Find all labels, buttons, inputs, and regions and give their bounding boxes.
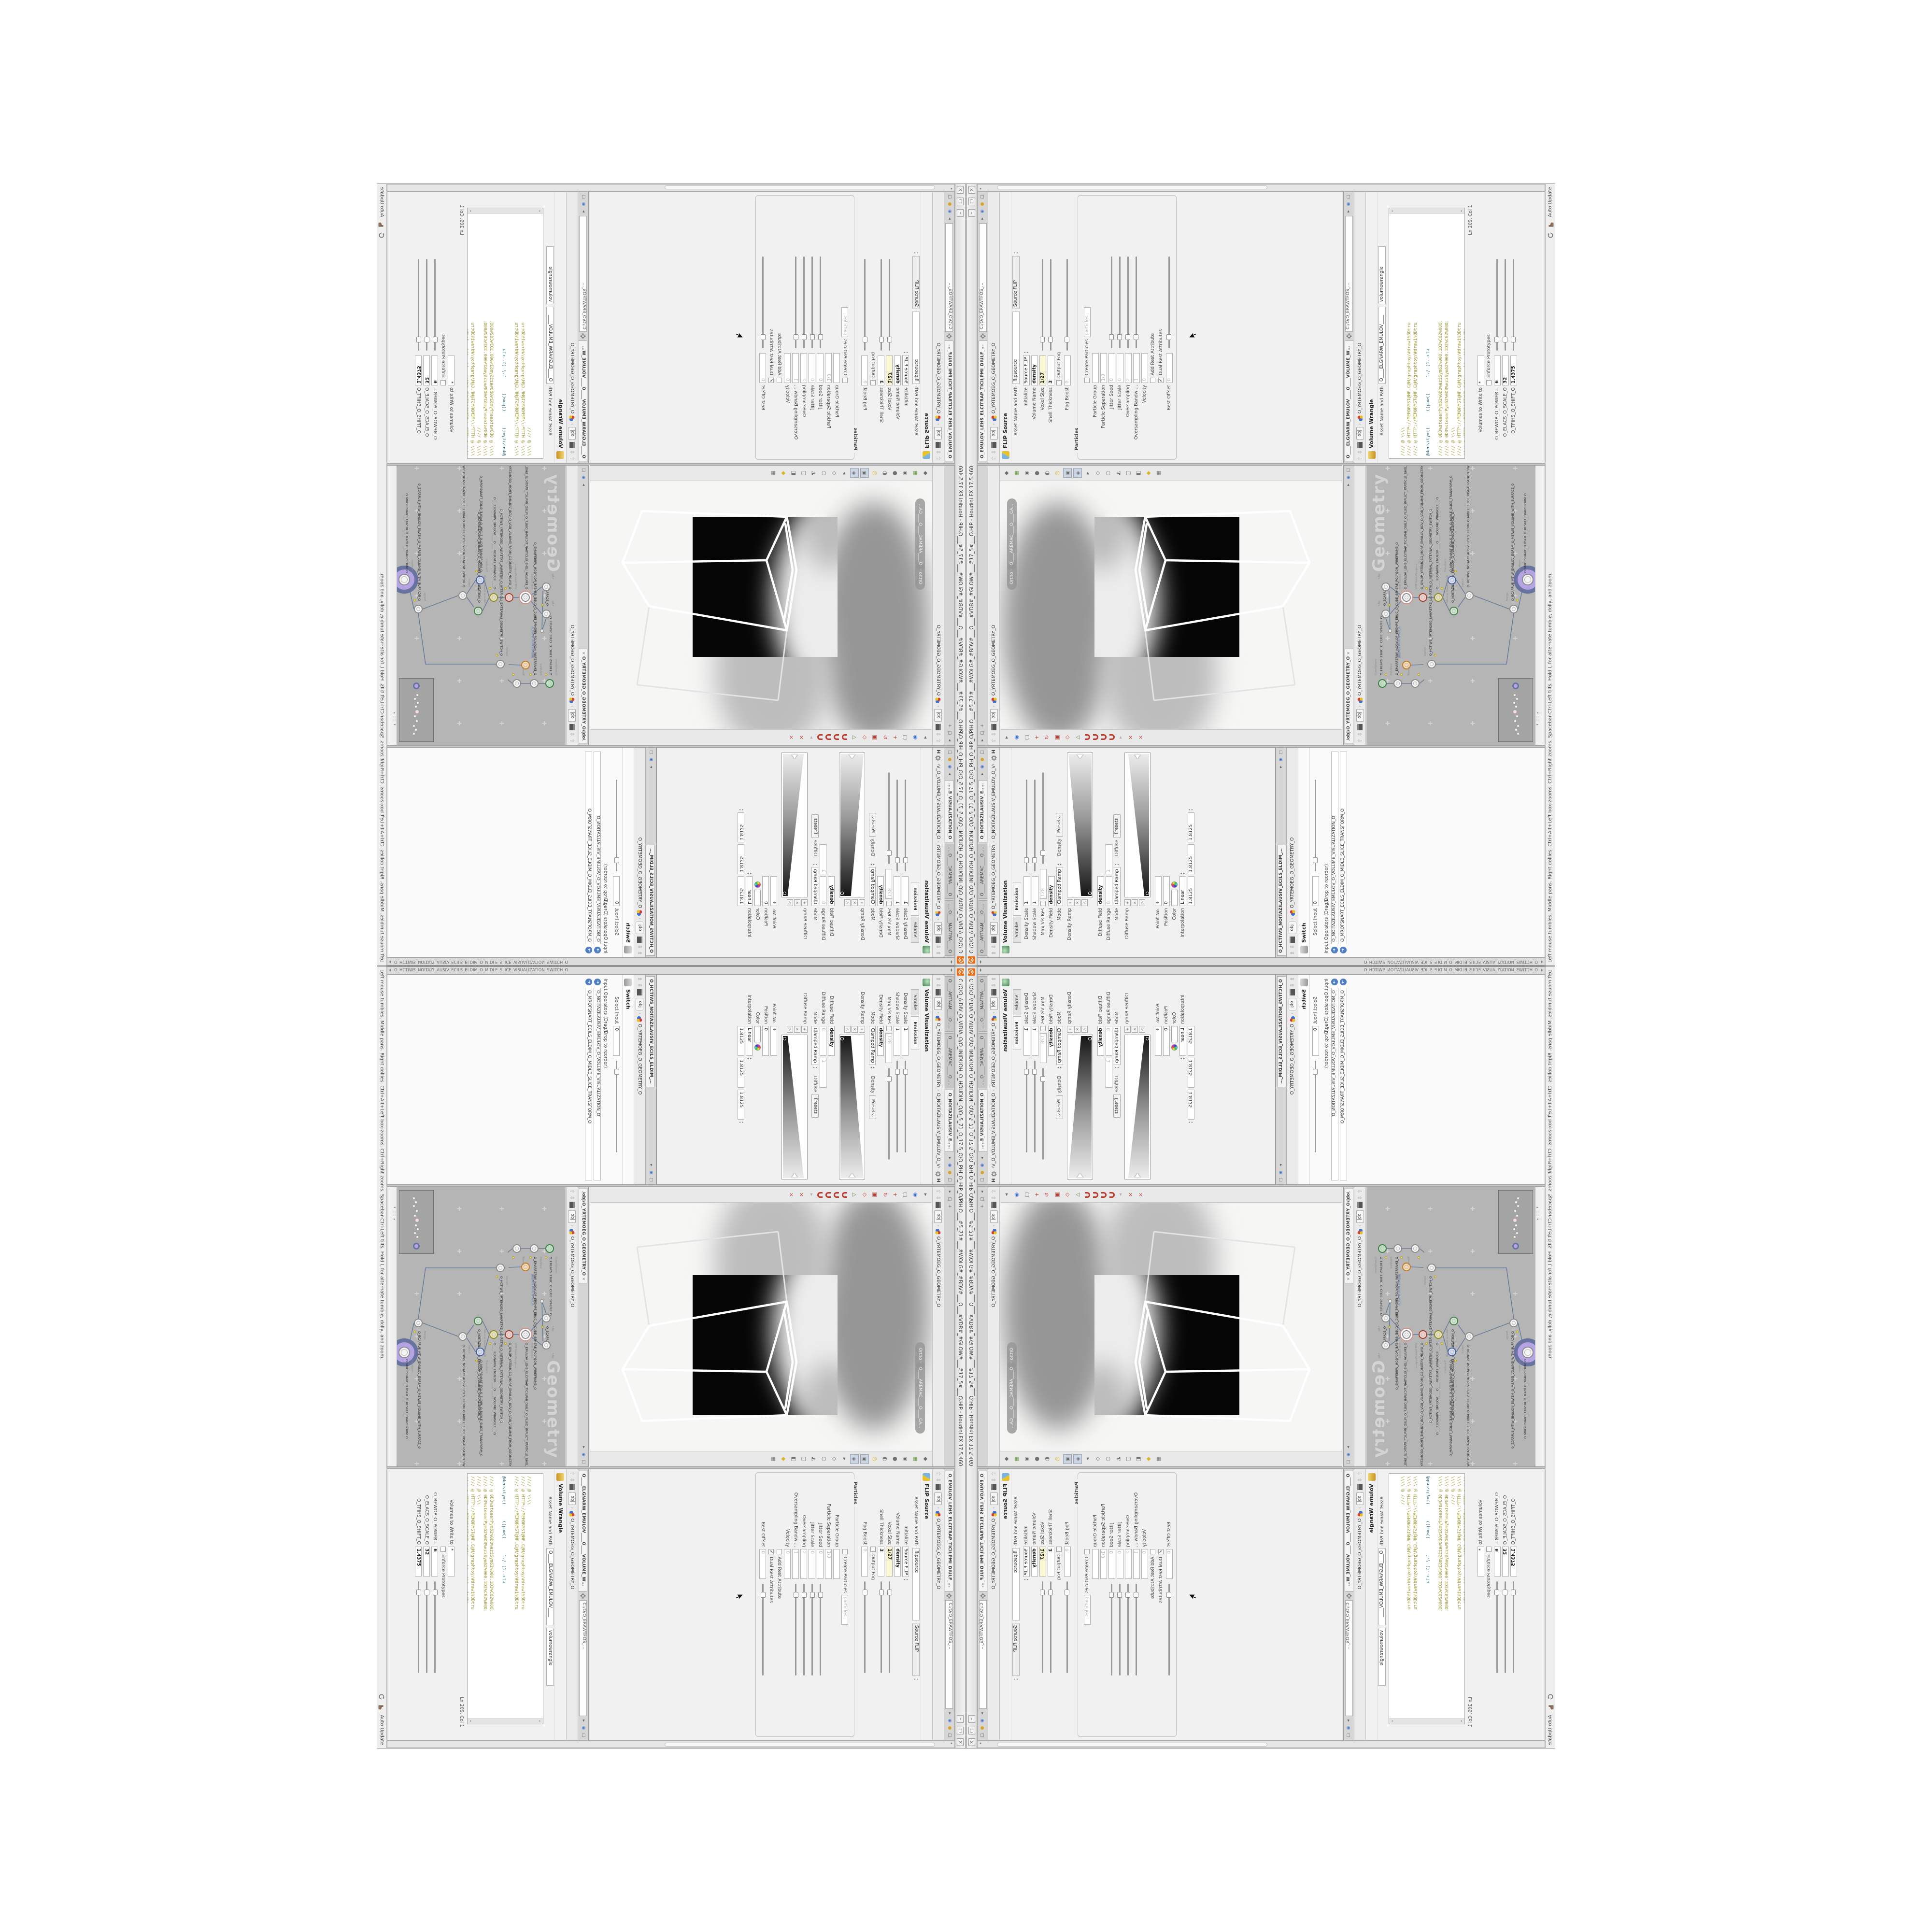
- link-icon[interactable]: ◉: [980, 208, 986, 214]
- hda-path-field[interactable]: C:/O/O_ERAWTFOS_...: [1345, 216, 1353, 332]
- breadcrumb-node[interactable]: O_YRTEMOEG_O_GEOMETRY_O: [637, 1024, 642, 1095]
- ramp-cursor-handle[interactable]: [792, 1173, 797, 1178]
- toolbar-icon[interactable]: ▸: [1083, 469, 1092, 478]
- node-flag[interactable]: [1418, 673, 1420, 676]
- network-node[interactable]: Switch O_HCTIWS_YRTEMOEG_LANRETXE_LANRET…: [1427, 1264, 1436, 1272]
- param-value-field[interactable]: density: [895, 355, 901, 385]
- param-value-field[interactable]: 1: [793, 1549, 799, 1579]
- link-icon[interactable]: ◉: [580, 1725, 586, 1731]
- pane-tab-volume-wrangle[interactable]: O____ELGNARW_EMULOV____O____VOLUME_WRANG…: [579, 341, 588, 461]
- pin-icon[interactable]: ●: [946, 201, 952, 207]
- density-ramp-editor[interactable]: [1067, 753, 1093, 897]
- param-checkbox[interactable]: ✓: [1158, 1549, 1164, 1554]
- value-spinner[interactable]: ▴▾: [913, 249, 919, 254]
- param-value-field[interactable]: 32: [1502, 355, 1509, 385]
- toolbar-icon[interactable]: ▸: [1002, 733, 1011, 742]
- breadcrumb-node[interactable]: O_YRTEMOEG_O_GEOMETRY_O: [569, 343, 575, 414]
- ramp-delete-point-button[interactable]: ×: [794, 1026, 800, 1033]
- param-value-field[interactable]: 0: [613, 876, 620, 906]
- param-checkbox[interactable]: [1084, 378, 1090, 383]
- param-value-field[interactable]: 2: [801, 1549, 808, 1579]
- toolbar-icon[interactable]: [1109, 1192, 1115, 1198]
- toolbar-icon[interactable]: ◐: [881, 1454, 889, 1464]
- input-operator-row[interactable]: ➜ O_NOITAZILAUSIV_EMULOV_O_VOLUME_VISUAL…: [593, 975, 602, 1184]
- restore-button[interactable]: ▢: [957, 1727, 964, 1734]
- nav-up-icon[interactable]: ⇧: [1357, 1189, 1363, 1193]
- node-flag[interactable]: [512, 673, 514, 676]
- network-node[interactable]: PolyWire O_EMARFERIW_NOGYLOP_EREHPS_EBUC…: [530, 679, 539, 688]
- network-node[interactable]: PolyWire O_EMARFERIW_NOGYLOP_EREHPS_EBUC…: [1393, 679, 1402, 688]
- breadcrumb-root[interactable]: obj: [990, 1210, 998, 1223]
- toolbar-icon[interactable]: ◈: [850, 469, 859, 478]
- param-slider[interactable]: [616, 1061, 617, 1152]
- param-value-field[interactable]: 1.8125: [1188, 844, 1194, 874]
- param-value-field[interactable]: 3: [1048, 355, 1054, 385]
- breadcrumb-root[interactable]: obj: [568, 1492, 576, 1505]
- ramp-point-handle[interactable]: [1146, 1037, 1149, 1040]
- param-value-field[interactable]: 1/9: [825, 1549, 832, 1579]
- network-node[interactable]: Volume Visualization O_NOITAZILAUSIV_EMU…: [474, 607, 483, 615]
- param-slider[interactable]: [426, 1581, 427, 1673]
- param-slider[interactable]: [1050, 259, 1051, 351]
- value-spinner[interactable]: ▴▾: [1057, 861, 1063, 865]
- breadcrumb-node[interactable]: O_YRTEMOEG_O_GEOMETRY_O: [936, 1519, 941, 1590]
- toolbar-icon[interactable]: ▦: [911, 469, 920, 478]
- value-spinner[interactable]: ▴▾: [747, 870, 753, 874]
- asset-menu[interactable]: Source FLIP: [1012, 256, 1020, 309]
- node-flag[interactable]: [529, 673, 532, 676]
- close-button[interactable]: ×: [957, 1738, 964, 1746]
- pane-tab-volume-wrangle[interactable]: O____ELGNARW_EMULOV____O____VOLUME_WRANG…: [1345, 341, 1353, 461]
- param-slider[interactable]: [896, 1061, 898, 1152]
- stowed-pane-bar-left[interactable]: ◂▸ O_HCTIWS_NOITAZILAUSIV_ECILS_ELDIM_O_…: [977, 958, 1545, 966]
- param-slider[interactable]: [1111, 256, 1112, 348]
- toolbar-icon[interactable]: ◉: [901, 469, 909, 478]
- gear-icon[interactable]: [947, 1593, 952, 1599]
- toolbar-icon[interactable]: ▣: [1063, 469, 1072, 478]
- param-checkbox[interactable]: [1486, 1547, 1492, 1552]
- pane-split-icon[interactable]: +: [980, 1203, 986, 1209]
- param-value-field[interactable]: 32: [424, 355, 430, 385]
- asset-name-field-2[interactable]: volumewrangle: [1378, 1628, 1386, 1686]
- value-spinner[interactable]: ▴▾: [1114, 861, 1120, 865]
- toolbar-icon[interactable]: ▦: [1012, 469, 1021, 478]
- nav-up-icon[interactable]: ⇧: [569, 1189, 575, 1193]
- toolbar-icon[interactable]: ×: [787, 733, 796, 742]
- network-node[interactable]: CubeSphere O_EREHPS_EBUC_O_CUBE_SPHERE_O: [545, 1244, 554, 1253]
- node-flag[interactable]: [1516, 599, 1519, 601]
- network-node[interactable]: Bound: [1411, 1244, 1420, 1253]
- param-slider[interactable]: [1168, 1584, 1170, 1676]
- ramp-cursor-handle[interactable]: [1077, 754, 1083, 759]
- pane-split-icon[interactable]: +: [980, 723, 986, 729]
- stow-icon[interactable]: ▸: [946, 771, 952, 777]
- value-spinner[interactable]: ▴▾: [1057, 1067, 1063, 1071]
- param-value-field[interactable]: 1: [1155, 876, 1162, 906]
- diffuse-ramp-editor[interactable]: [781, 753, 808, 897]
- asset-name-field[interactable]: flipsource: [912, 312, 920, 384]
- param-value-field[interactable]: 1/9: [1100, 1549, 1107, 1579]
- param-slider[interactable]: [864, 1581, 866, 1673]
- color-swatch[interactable]: [1171, 1026, 1178, 1042]
- pane-tab-volume-wrangle[interactable]: O____ELGNARW_EMULOV____O____VOLUME_WRANG…: [1345, 1471, 1353, 1591]
- pane-menu-icon[interactable]: ▢: [580, 1732, 586, 1738]
- param-value-field[interactable]: *: [448, 1547, 455, 1577]
- hda-path-field[interactable]: C:/O/O_ERAWTFOS_...: [580, 1600, 587, 1716]
- ramp-cursor-handle[interactable]: [849, 754, 855, 759]
- update-mode-selector[interactable]: Auto Update: [1548, 1715, 1553, 1745]
- param-slider[interactable]: [1496, 259, 1498, 351]
- gear-icon[interactable]: [581, 333, 586, 339]
- node-flag[interactable]: [1425, 1342, 1428, 1345]
- network-node[interactable]: Merge O_ECAFRUS_HTIW_EMULOV_EGREM_O_MERG…: [1509, 605, 1518, 613]
- toolbar-icon[interactable]: ◉: [1023, 469, 1031, 478]
- asset-name-field[interactable]: O____ELGNARW_EMULOV____: [546, 1548, 554, 1625]
- stow-icon[interactable]: ▸: [980, 1710, 986, 1717]
- input-operator-row[interactable]: ➜ O_NOITAZILAUSIV_EMULOV_O_VOLUME_VISUAL…: [1330, 748, 1339, 957]
- toolbar-icon[interactable]: ▦: [1154, 469, 1163, 478]
- reorder-icon[interactable]: ➜: [594, 979, 601, 985]
- minimize-button[interactable]: –: [968, 209, 975, 217]
- hda-path-field[interactable]: C:/O/O_ERAWTFOS_...: [979, 223, 987, 332]
- breadcrumb-node[interactable]: O_YRTEMOEG_O_GEOMETRY_O: [569, 1519, 575, 1590]
- stow-icon[interactable]: ▸: [648, 764, 654, 770]
- link-icon[interactable]: ◉: [946, 208, 952, 214]
- ramp-add-point-button[interactable]: +: [1124, 1026, 1131, 1033]
- param-value-field[interactable]: Linear: [1179, 876, 1186, 906]
- param-checkbox[interactable]: [870, 1547, 876, 1552]
- value-spinner[interactable]: ▴▾: [1188, 806, 1194, 810]
- asset-name-field[interactable]: flipsource: [1012, 312, 1020, 384]
- code-scrollbar[interactable]: ▴▾: [1389, 208, 1464, 213]
- stowed-pane-bar-right[interactable]: ◂: [387, 1740, 955, 1748]
- ramp-delete-point-button[interactable]: ×: [1074, 1026, 1080, 1033]
- breadcrumb-node[interactable]: O_YRTEMOEG_O_GEOMETRY_O: [991, 1236, 996, 1307]
- network-node[interactable]: Clip O_ECAFRUS_...: [1381, 610, 1390, 618]
- stowed-pane-bar-right[interactable]: ◂: [387, 184, 955, 192]
- param-value-field[interactable]: Source FLIP: [1023, 355, 1030, 385]
- param-value-field[interactable]: *: [448, 355, 455, 385]
- pane-tab-flip-source[interactable]: O_EMULOV_LEHS_ELCITRAP_TICILPMI_DIULF_O_…: [945, 341, 954, 461]
- network-node[interactable]: Volume Wrangle O____ELGNARW_EMULOV____O_…: [489, 1330, 498, 1339]
- value-spinner[interactable]: ▴▾: [747, 1058, 753, 1062]
- toolbar-icon[interactable]: ◎: [870, 1454, 879, 1464]
- param-slider[interactable]: [888, 772, 890, 864]
- ramp-cursor-handle[interactable]: [849, 1173, 855, 1178]
- color-swatch[interactable]: [754, 890, 761, 906]
- ramp-cursor-handle[interactable]: [1135, 1173, 1140, 1178]
- pane-tab-camera[interactable]: O____AREMAC____O... ×: [945, 844, 954, 899]
- network-node[interactable]: Clip O_ECAFRUS_...: [542, 610, 551, 618]
- network-overview-map[interactable]: [399, 1190, 434, 1254]
- param-value-field[interactable]: 0: [784, 1549, 791, 1579]
- param-value-field[interactable]: 0: [1312, 876, 1319, 906]
- breadcrumb-root[interactable]: obj: [1356, 1210, 1364, 1223]
- toolbar-icon[interactable]: ▣: [1053, 1190, 1062, 1200]
- node-flag[interactable]: [1400, 673, 1403, 676]
- pane-tab-mantra[interactable]: O____ARTNAM____O... ×: [945, 900, 954, 956]
- toolbar-icon[interactable]: ◆: [921, 1454, 930, 1464]
- presets-button[interactable]: Presets: [811, 814, 819, 838]
- toolbar-icon[interactable]: ▸: [807, 733, 816, 742]
- tab-smoke[interactable]: Smoke: [1013, 989, 1021, 1015]
- link-icon[interactable]: ◉: [1278, 1169, 1284, 1176]
- breadcrumb-node[interactable]: O_YRTEMOEG_O_GEOMETRY_O: [991, 845, 996, 909]
- update-mode-selector[interactable]: Auto Update: [379, 1715, 384, 1745]
- network-node[interactable]: Transform O_MROFSNART_TLUSER_O_RESULT_TR…: [1522, 1347, 1534, 1358]
- ramp-cursor-handle[interactable]: [1077, 1173, 1083, 1178]
- breadcrumb-node[interactable]: O_YRTEMOEG_O_GEOMETRY_O: [1357, 1236, 1363, 1307]
- network-node[interactable]: Transform O_MROFSNART_TLUSER_O_RESULT_TR…: [398, 574, 410, 585]
- param-value-field[interactable]: 1/27: [1039, 1547, 1046, 1577]
- toolbar-icon[interactable]: ▸: [1116, 733, 1125, 742]
- network-node[interactable]: Volume Wrangle O____ELGNARW_EMULOV____O_…: [1434, 593, 1443, 602]
- pane-tab-network[interactable]: /obj/O_YRTEMOEG_O_GEOMETRY_O ×: [1345, 649, 1353, 743]
- value-spinner[interactable]: ▴▾: [913, 1678, 919, 1683]
- nav-down-icon[interactable]: ⇩: [935, 945, 941, 949]
- window-titlebar[interactable]: C:/O/O_AIDIV_O_VIDIA_O/O_INIDUOH_O_HOUDI…: [966, 184, 977, 966]
- toolbar-icon[interactable]: ▦: [911, 1454, 920, 1464]
- stow-icon[interactable]: ▸: [946, 737, 952, 743]
- toolbar-icon[interactable]: ×: [787, 1190, 796, 1200]
- ramp-add-point-button[interactable]: +: [801, 899, 808, 906]
- toolbar-icon[interactable]: ◎: [870, 469, 879, 478]
- toolbar-icon[interactable]: +: [891, 733, 899, 742]
- network-overview-map[interactable]: [1498, 1190, 1533, 1254]
- toolbar-icon[interactable]: ▣: [870, 733, 879, 742]
- network-node[interactable]: Transform O_MROFSNART_ECILS_ELDIM_O_MIDL…: [1448, 576, 1456, 584]
- toolbar-icon[interactable]: △: [850, 1190, 859, 1200]
- toolbar-icon[interactable]: +: [1033, 1190, 1041, 1200]
- node-flag[interactable]: [1385, 1256, 1387, 1259]
- ramp-add-point-button[interactable]: +: [1124, 899, 1131, 906]
- color-swatch[interactable]: [1171, 890, 1178, 906]
- nav-up-icon[interactable]: ⇧: [935, 951, 941, 955]
- reorder-icon[interactable]: ➜: [585, 947, 592, 953]
- breadcrumb-node[interactable]: O_YRTEMOEG_O_GEOMETRY_O: [936, 625, 941, 696]
- toolbar-icon[interactable]: [825, 735, 831, 740]
- stowed-pane-bar-right[interactable]: ◂: [977, 1740, 1545, 1748]
- gear-icon[interactable]: [947, 333, 952, 339]
- nav-up-icon[interactable]: ⇧: [637, 977, 643, 981]
- param-value-field[interactable]: 1.8125: [1188, 812, 1194, 842]
- gear-icon[interactable]: [980, 1593, 986, 1599]
- color-swatch[interactable]: [754, 1026, 761, 1042]
- param-value-field[interactable]: density: [878, 1026, 884, 1056]
- viewport-canvas[interactable]: Ortho ▾ O____AREMAC____O____CA...: [590, 481, 932, 729]
- toolbar-icon[interactable]: ◉: [911, 1190, 920, 1200]
- param-value-field[interactable]: Source FLIP: [903, 1547, 909, 1577]
- network-node[interactable]: CubeSphere O_EREHPS_EBUC_O_CUBE_SPHERE_O: [1378, 679, 1387, 688]
- nav-down-icon[interactable]: ⇩: [991, 732, 997, 737]
- param-slider[interactable]: [1111, 1584, 1112, 1676]
- param-value-field[interactable]: density: [1031, 355, 1038, 385]
- param-value-field[interactable]: Linear: [746, 876, 753, 906]
- toolbar-icon[interactable]: ◭: [810, 469, 818, 478]
- ramp-flip-button[interactable]: ▷: [787, 899, 793, 906]
- param-value-field[interactable]: particles: [842, 1595, 849, 1625]
- stow-icon[interactable]: ▸: [1346, 208, 1352, 214]
- toolbar-icon[interactable]: ◆: [921, 469, 930, 478]
- network-node[interactable]: Switch O_HCTIWS_NOITAZILAUSIV_ECILS_ELDI…: [458, 591, 467, 600]
- breadcrumb-node[interactable]: O_YRTEMOEG_O_GEOMETRY_O: [936, 845, 941, 909]
- param-value-field[interactable]: 1/9: [825, 353, 832, 383]
- toolbar-icon[interactable]: +: [1033, 733, 1041, 742]
- pane-tab-visualization[interactable]: O_NOITAZILAUSIV_E... ×: [945, 1090, 954, 1152]
- breadcrumb-node[interactable]: O_YRTEMOEG_O_GEOMETRY_O: [1357, 343, 1363, 414]
- nav-down-icon[interactable]: ⇩: [935, 983, 941, 987]
- ramp-delete-point-button[interactable]: ×: [1132, 899, 1138, 906]
- param-slider[interactable]: [811, 256, 813, 348]
- pane-tab-mantra[interactable]: O____ARTNAM____O... ×: [945, 976, 954, 1032]
- toolbar-icon[interactable]: ◭: [1114, 469, 1122, 478]
- restore-button[interactable]: ▢: [957, 198, 964, 205]
- param-value-field[interactable]: 1.8125: [738, 1058, 745, 1088]
- breadcrumb-root[interactable]: obj: [1356, 1492, 1364, 1505]
- param-slider[interactable]: [1127, 256, 1129, 348]
- param-value-field[interactable]: 0: [1163, 1026, 1170, 1056]
- value-spinner[interactable]: ▴▾: [812, 1067, 818, 1071]
- breadcrumb-root[interactable]: obj: [636, 922, 644, 934]
- code-scrollbar[interactable]: ▴▾: [468, 208, 543, 213]
- node-flag[interactable]: [1434, 1276, 1436, 1278]
- param-value-field[interactable]: Linear: [1179, 1026, 1186, 1056]
- vex-snippet-editor[interactable]: //// @ \\\\//// @ HTTP://MEMORYST@MP.C@M…: [467, 1473, 543, 1724]
- param-slider[interactable]: [1496, 1581, 1498, 1673]
- param-value-field[interactable]: 6: [432, 355, 439, 385]
- network-node[interactable]: Transform O_MROFSNART_ECILS_ELDIM_O_MIDL…: [476, 576, 484, 584]
- toolbar-icon[interactable]: ◇: [1063, 733, 1072, 742]
- param-slider[interactable]: [795, 1584, 796, 1676]
- stow-icon[interactable]: ▸: [580, 1444, 586, 1450]
- minimize-button[interactable]: –: [957, 1715, 964, 1723]
- toolbar-icon[interactable]: ◈: [1073, 1454, 1082, 1464]
- close-button[interactable]: ×: [968, 186, 975, 194]
- param-value-field[interactable]: density: [1097, 876, 1104, 906]
- param-value-field[interactable]: 1: [1106, 1058, 1112, 1088]
- toolbar-icon[interactable]: [1101, 735, 1107, 740]
- param-value-field[interactable]: Clamped Ramp: [812, 1026, 819, 1065]
- asset-menu[interactable]: Source FLIP: [1012, 1623, 1020, 1676]
- toolbar-icon[interactable]: ▣: [1063, 1454, 1072, 1464]
- nav-down-icon[interactable]: ⇩: [935, 1195, 941, 1200]
- link-icon[interactable]: ◉: [580, 1451, 586, 1458]
- param-value-field[interactable]: 0: [760, 353, 767, 383]
- param-value-field[interactable]: 1.8125: [1188, 1090, 1194, 1120]
- tab-smoke[interactable]: Smoke: [911, 989, 919, 1015]
- network-node[interactable]: FLIP Source O_EMULOV_LEHS_ELCITRAP_TICIL…: [521, 593, 530, 602]
- nav-down-icon[interactable]: ⇩: [569, 450, 575, 455]
- toolbar-icon[interactable]: [817, 735, 823, 740]
- pane-menu-icon[interactable]: ▢: [580, 194, 586, 200]
- param-value-field[interactable]: 1: [771, 1026, 778, 1056]
- restore-button[interactable]: ▢: [968, 198, 975, 205]
- pane-menu-icon[interactable]: ▢: [1346, 194, 1352, 200]
- nav-down-icon[interactable]: ⇩: [1357, 732, 1363, 737]
- ramp-point-handle[interactable]: [1088, 1037, 1092, 1040]
- input-operator-row[interactable]: ➜ O_MROFSNART_ECILS_ELDIM_O_MIDLE_SLICE_…: [1339, 975, 1348, 1184]
- toolbar-icon[interactable]: [1085, 735, 1090, 740]
- pin-icon[interactable]: ▢: [1346, 467, 1352, 473]
- breadcrumb-root[interactable]: obj: [1289, 922, 1296, 934]
- param-value-field[interactable]: Clamped Ramp: [1114, 1026, 1121, 1065]
- breadcrumb-node[interactable]: O_YRTEMOEG_O_GEOMETRY_O: [991, 1023, 996, 1087]
- network-canvas[interactable]: Geometry JBO.M03.PETS.TPOLS_O CubeSphere…: [1366, 1187, 1540, 1466]
- param-value-field[interactable]: 1.8125: [1188, 876, 1194, 906]
- param-value-field[interactable]: 0: [817, 1549, 824, 1579]
- value-spinner[interactable]: ▴▾: [739, 1122, 744, 1126]
- toolbar-icon[interactable]: ◧: [789, 1454, 798, 1464]
- param-slider[interactable]: [1042, 772, 1044, 864]
- stowed-pane-bar-left[interactable]: ◂▸ O_HCTIWS_NOITAZILAUSIV_ECILS_ELDIM_O_…: [977, 966, 1545, 974]
- param-slider[interactable]: [1168, 256, 1170, 348]
- network-node[interactable]: VDB from Polygons O_GYLOP_YRTEMOEG_MORF_…: [1419, 593, 1427, 602]
- ramp-point-handle[interactable]: [783, 1037, 786, 1040]
- update-refresh-icon[interactable]: [1547, 232, 1554, 239]
- toolbar-icon[interactable]: △: [1073, 1190, 1082, 1200]
- network-scrollbar[interactable]: ▾ ::::: ▴: [1535, 466, 1540, 745]
- toolbar-icon[interactable]: ◈: [1073, 469, 1082, 478]
- breadcrumb-node[interactable]: O_YRTEMOEG_O_GEOMETRY_O: [1357, 1519, 1363, 1590]
- param-checkbox[interactable]: [842, 378, 848, 383]
- param-slider[interactable]: [811, 1584, 813, 1676]
- toolbar-icon[interactable]: ◆: [1002, 469, 1011, 478]
- stow-icon[interactable]: ▸: [946, 1710, 952, 1717]
- ramp-delete-point-button[interactable]: ×: [794, 899, 800, 906]
- nav-up-icon[interactable]: ⇧: [935, 456, 941, 461]
- stow-icon[interactable]: ▸: [980, 737, 986, 743]
- asset-name-field[interactable]: O____ELGNARW_EMULOV____: [546, 307, 554, 384]
- nav-down-icon[interactable]: ⇩: [991, 450, 997, 455]
- network-node[interactable]: Volume Wrangle O____ELGNARW_EMULOV____O_…: [1434, 1330, 1443, 1339]
- stow-icon[interactable]: ▸: [980, 1155, 986, 1161]
- toolbar-icon[interactable]: [1085, 1192, 1090, 1198]
- pane-tab-switch[interactable]: O_HCTIWS_NOITAZILAUSIV_ECILS_ELDIM_O_ ×: [1277, 845, 1286, 956]
- ramp-point-handle[interactable]: [783, 892, 786, 895]
- breadcrumb-node[interactable]: O_YRTEMOEG_O_GEOMETRY_O: [637, 838, 642, 909]
- breadcrumb-root[interactable]: obj: [935, 1210, 942, 1223]
- breadcrumb-root[interactable]: obj: [935, 427, 942, 440]
- toolbar-icon[interactable]: ▢: [799, 1454, 808, 1464]
- param-value-field[interactable]: 3: [878, 355, 885, 385]
- param-value-field[interactable]: 1: [1032, 1026, 1038, 1056]
- reorder-icon[interactable]: ➜: [1331, 947, 1338, 953]
- toolbar-icon[interactable]: ◉: [1012, 733, 1021, 742]
- nav-up-icon[interactable]: ⇧: [935, 1189, 941, 1193]
- stow-icon[interactable]: ▸: [580, 482, 586, 488]
- stow-icon[interactable]: ▸: [946, 1189, 952, 1195]
- nav-up-icon[interactable]: ⇧: [1357, 1471, 1363, 1476]
- param-value-field[interactable]: 128: [1040, 869, 1047, 899]
- close-button[interactable]: ×: [957, 186, 964, 194]
- param-value-field[interactable]: 0: [1064, 355, 1071, 385]
- param-value-field[interactable]: density: [828, 1026, 835, 1056]
- param-value-field[interactable]: density: [1097, 1026, 1104, 1056]
- reorder-icon[interactable]: ➜: [585, 979, 592, 985]
- node-flag[interactable]: [1388, 1326, 1391, 1328]
- pane-menu-icon[interactable]: ▢: [946, 1732, 952, 1738]
- presets-button[interactable]: Presets: [1056, 813, 1063, 837]
- param-checkbox[interactable]: [1084, 1549, 1090, 1554]
- param-slider[interactable]: [888, 1068, 890, 1160]
- node-flag[interactable]: [496, 654, 498, 656]
- toolbar-icon[interactable]: ◉: [1023, 1454, 1031, 1464]
- network-node[interactable]: FLIP Source O_EMULOV_LEHS_ELCITRAP_TICIL…: [521, 1330, 530, 1339]
- breadcrumb-root[interactable]: obj: [990, 709, 998, 722]
- link-icon[interactable]: ◉: [946, 1162, 952, 1168]
- vex-snippet-editor[interactable]: //// @ \\\\//// @ HTTP://MEMORYST@MP.C@M…: [467, 208, 543, 459]
- node-flag[interactable]: [541, 604, 544, 606]
